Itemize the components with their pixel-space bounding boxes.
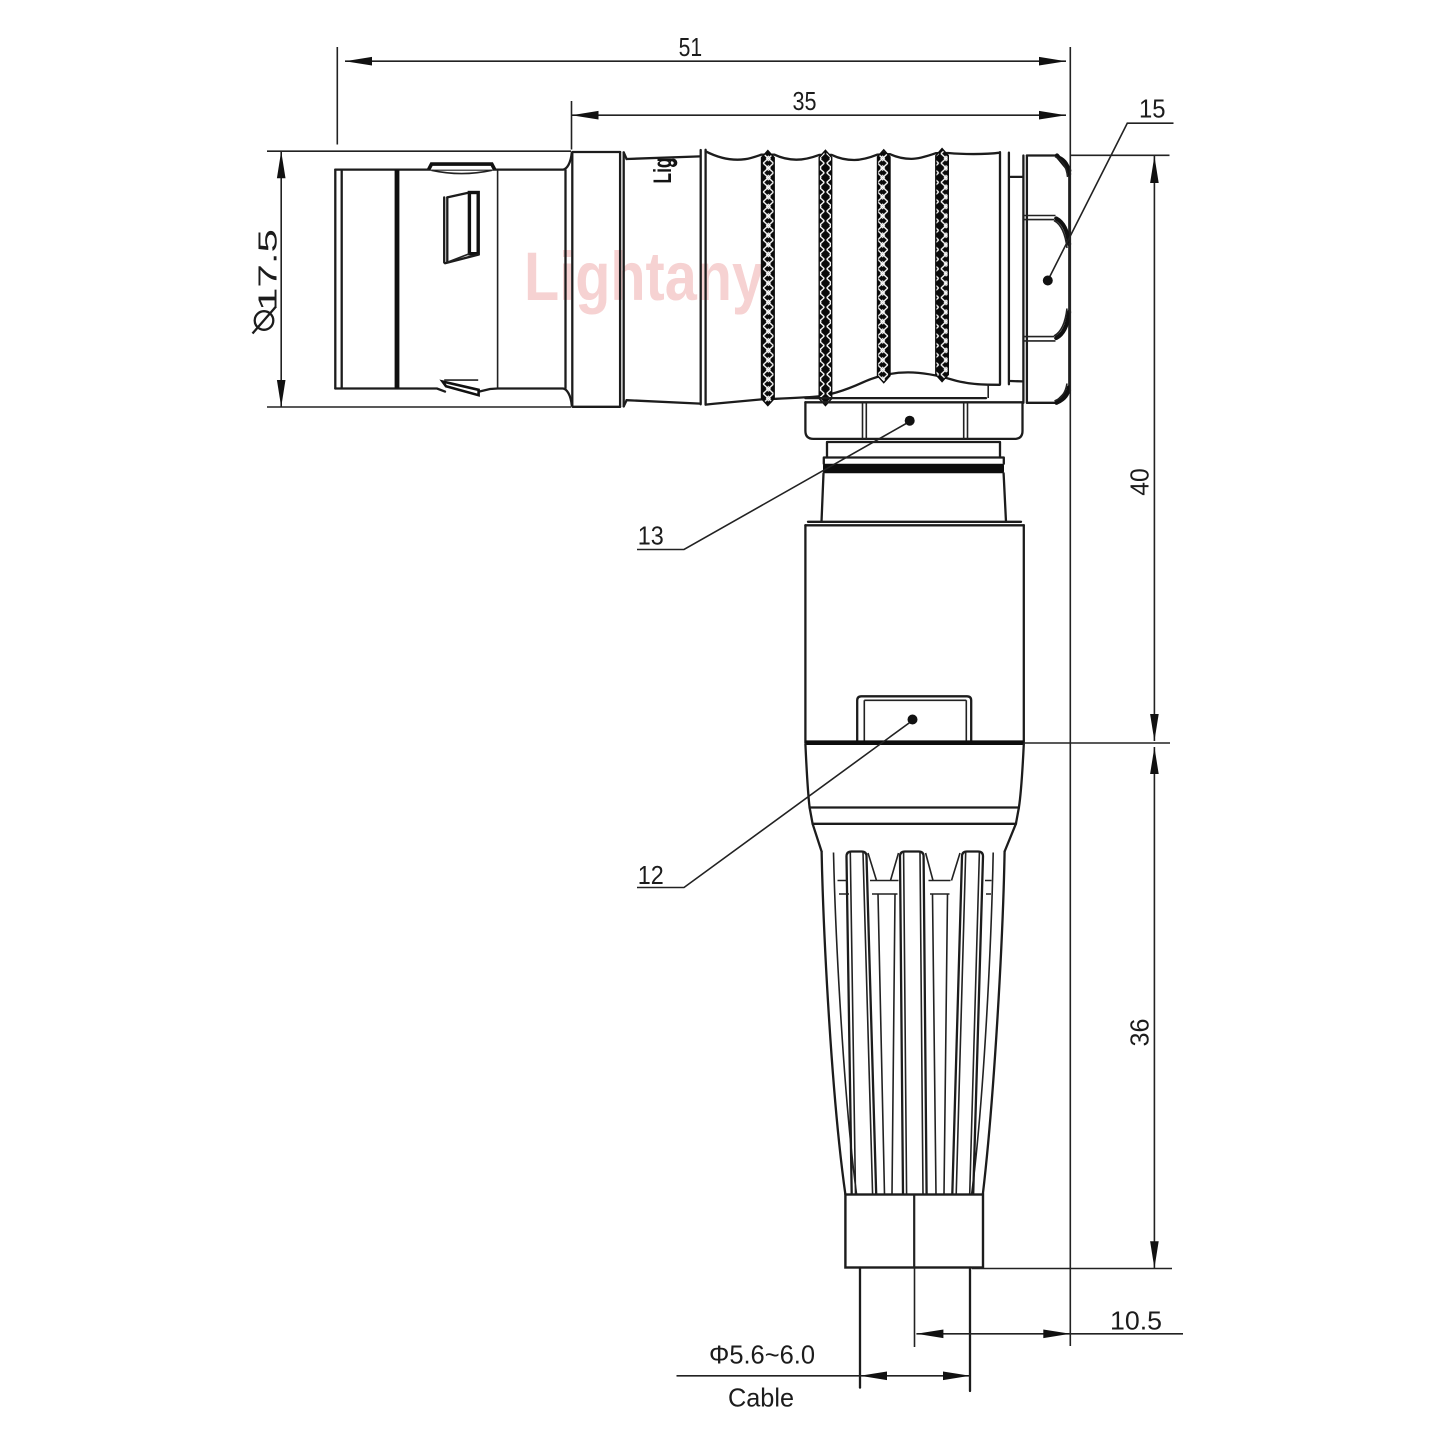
svg-text:36: 36 [1124,1019,1154,1047]
svg-text:Lig: Lig [649,158,677,184]
svg-text:12: 12 [638,860,664,890]
svg-text:15: 15 [1139,94,1166,124]
svg-text:10.5: 10.5 [1110,1306,1162,1336]
svg-text:Cable: Cable [728,1382,794,1412]
svg-text:Lightany: Lightany [524,238,764,315]
svg-text:51: 51 [679,32,703,62]
svg-text:13: 13 [638,520,664,550]
svg-text:Φ5.6~6.0: Φ5.6~6.0 [709,1340,815,1370]
svg-text:35: 35 [793,86,817,116]
svg-text:40: 40 [1124,468,1154,496]
svg-text:17.5: 17.5 [253,229,283,311]
